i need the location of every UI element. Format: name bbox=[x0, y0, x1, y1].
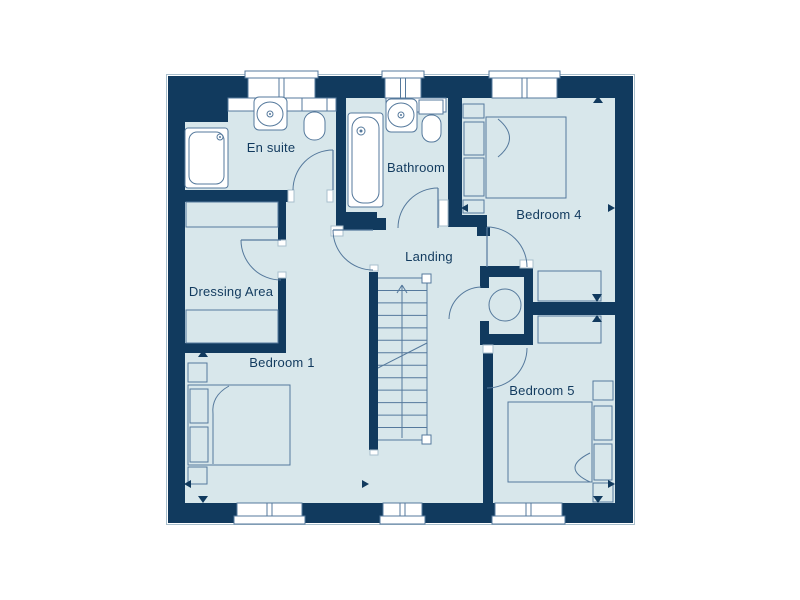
bath-shape bbox=[348, 113, 383, 207]
wall-segment bbox=[480, 266, 489, 288]
wall-segment bbox=[533, 302, 615, 315]
door-jamb bbox=[288, 190, 294, 202]
door-jamb bbox=[327, 190, 333, 202]
stair-newel bbox=[422, 274, 431, 283]
door-jamb bbox=[483, 345, 493, 353]
wall-segment bbox=[346, 218, 386, 230]
shower bbox=[185, 128, 228, 188]
window-sill bbox=[489, 71, 560, 78]
floor-plan-svg: En suiteBathroomBedroom 4LandingDressing… bbox=[0, 0, 800, 600]
room-label-bedroom-4: Bedroom 4 bbox=[516, 207, 581, 222]
bathroom-vanity-dot bbox=[400, 114, 402, 116]
window-sill bbox=[234, 516, 305, 524]
wall-segment bbox=[168, 76, 185, 523]
wall-segment bbox=[477, 227, 490, 236]
bath bbox=[348, 113, 383, 207]
bathroom-toilet bbox=[419, 100, 443, 142]
room-label-bedroom-1: Bedroom 1 bbox=[249, 355, 314, 370]
window-sill bbox=[492, 516, 565, 524]
window-mullion bbox=[526, 503, 531, 516]
window-mullion bbox=[401, 78, 406, 98]
en-suite-toilet bbox=[302, 98, 327, 140]
stair-newel bbox=[422, 435, 431, 444]
floor-plan: En suiteBathroomBedroom 4LandingDressing… bbox=[0, 0, 800, 600]
wall-segment bbox=[168, 190, 288, 202]
window-bottom-0 bbox=[234, 503, 305, 524]
room-label-bedroom-5: Bedroom 5 bbox=[509, 383, 574, 398]
wall-segment bbox=[448, 215, 487, 227]
wall-segment bbox=[524, 266, 533, 345]
wall-segment bbox=[615, 76, 633, 523]
door-jamb bbox=[278, 272, 286, 278]
wall-segment bbox=[448, 98, 462, 222]
window-mullion bbox=[522, 78, 527, 98]
shower-shape bbox=[185, 128, 228, 188]
window-top-2 bbox=[489, 71, 560, 98]
room-label-en-suite: En suite bbox=[247, 140, 296, 155]
room-label-dressing-area: Dressing Area bbox=[189, 284, 274, 299]
wall-segment bbox=[278, 278, 286, 343]
door-jamb bbox=[370, 450, 378, 455]
wall-segment bbox=[168, 343, 286, 353]
wall-segment bbox=[369, 272, 378, 450]
door-jamb bbox=[439, 200, 448, 226]
window-sill bbox=[380, 516, 425, 524]
window-sill bbox=[245, 71, 318, 78]
room-label-bathroom: Bathroom bbox=[387, 160, 445, 175]
window-sill bbox=[382, 71, 424, 78]
window-top-1 bbox=[382, 71, 424, 98]
en-suite-toilet-shape bbox=[304, 112, 325, 140]
door-jamb bbox=[278, 240, 286, 246]
window-mullion bbox=[279, 78, 284, 98]
window-bottom-2 bbox=[492, 503, 565, 524]
shower-dot bbox=[219, 136, 221, 138]
wall-segment bbox=[278, 202, 286, 240]
window-top-0 bbox=[245, 71, 318, 98]
window-mullion bbox=[400, 503, 405, 516]
wall-segment bbox=[480, 321, 489, 345]
wall-segment bbox=[168, 98, 228, 122]
room-label-landing: Landing bbox=[405, 249, 453, 264]
en-suite-vanity-dot bbox=[269, 113, 271, 115]
bathroom-toilet-shape bbox=[422, 115, 441, 142]
bathroom-toilet-shape bbox=[419, 100, 443, 114]
window-mullion bbox=[267, 503, 272, 516]
wall-segment bbox=[336, 76, 346, 230]
en-suite-toilet-shape bbox=[302, 98, 327, 111]
wall-segment bbox=[483, 353, 493, 503]
bath-dot bbox=[360, 130, 363, 133]
window-bottom-1 bbox=[380, 503, 425, 524]
